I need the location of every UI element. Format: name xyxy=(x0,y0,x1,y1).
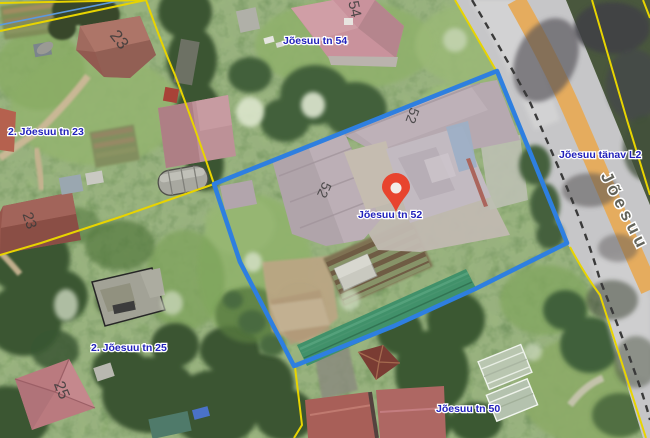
svg-text:Jõesuu tn 52: Jõesuu tn 52 xyxy=(358,209,422,221)
svg-text:2. Jõesuu tn 23: 2. Jõesuu tn 23 xyxy=(8,126,84,138)
svg-text:2. Jõesuu tn 25: 2. Jõesuu tn 25 xyxy=(91,342,167,354)
svg-text:Jõesuu tänav L2: Jõesuu tänav L2 xyxy=(559,149,641,161)
svg-text:Jõesuu tn 54: Jõesuu tn 54 xyxy=(283,35,347,47)
svg-text:Jõesuu tn 50: Jõesuu tn 50 xyxy=(436,403,500,415)
